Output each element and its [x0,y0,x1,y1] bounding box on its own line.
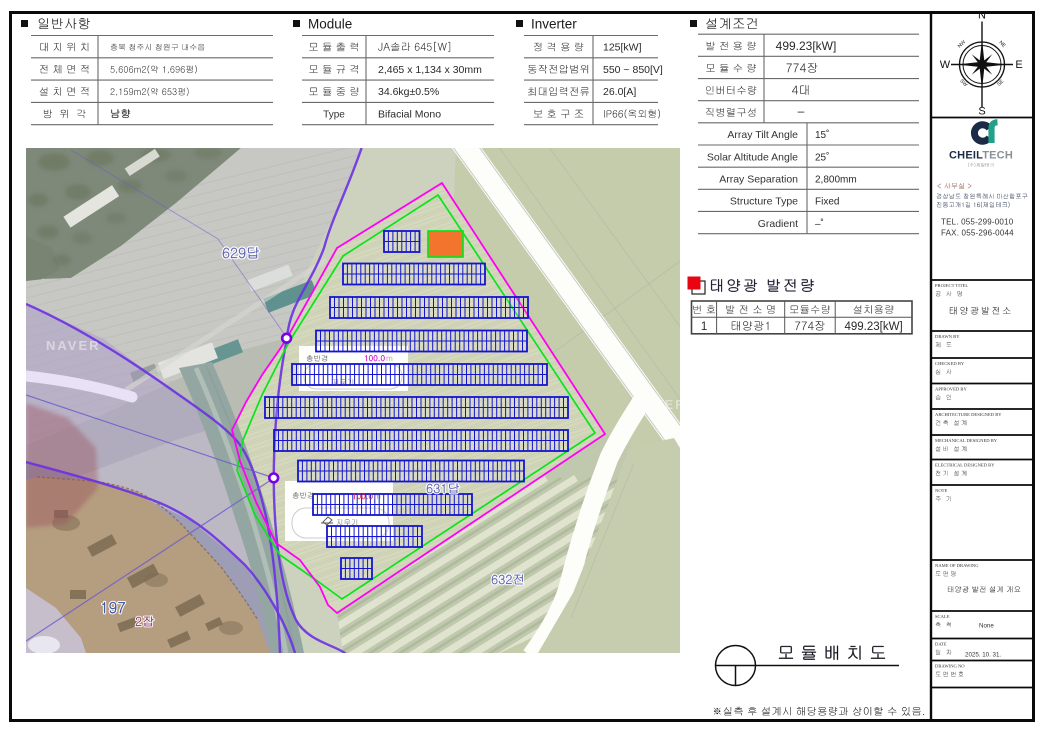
svg-text:34.6kg±0.5%: 34.6kg±0.5% [378,86,439,98]
svg-text:DATE: DATE [935,642,947,647]
svg-text:None: None [979,623,994,630]
svg-text:Gradient: Gradient [758,218,798,230]
svg-text:499.23[kW]: 499.23[kW] [776,39,837,53]
svg-text:S: S [978,106,985,118]
svg-text:1: 1 [701,321,707,333]
svg-text:N: N [978,10,986,22]
svg-text:Array Tilt Angle: Array Tilt Angle [727,129,798,141]
svg-text:NAVER: NAVER [632,397,687,412]
svg-text:FAX. 055-296-0044: FAX. 055-296-0044 [941,229,1014,238]
svg-text:SCALE: SCALE [935,614,950,619]
svg-text:TEL. 055-299-0010: TEL. 055-299-0010 [941,218,1014,227]
svg-text:NAME OF DRAWING: NAME OF DRAWING [935,563,979,568]
svg-text:2,800mm: 2,800mm [815,174,857,185]
svg-text:Structure Type: Structure Type [730,196,798,208]
svg-text:125[kW]: 125[kW] [603,42,642,54]
svg-text:DRAWN BY: DRAWN BY [935,334,960,339]
svg-text:Module: Module [308,17,352,32]
svg-text:15˚: 15˚ [815,129,829,141]
svg-text:Type: Type [323,109,345,120]
svg-text:–˚: –˚ [815,218,824,230]
svg-text:Solar Altitude Angle: Solar Altitude Angle [707,151,798,163]
svg-text:Inverter: Inverter [531,17,577,32]
svg-text:MECHANICAL DESIGNED BY: MECHANICAL DESIGNED BY [935,438,998,443]
svg-text:NAVER: NAVER [46,338,101,353]
svg-text:DRAWING NO: DRAWING NO [935,664,965,669]
svg-text:APPROVED BY: APPROVED BY [935,387,967,392]
svg-text:Fixed: Fixed [815,197,839,208]
svg-text:NE: NE [998,40,1008,50]
svg-text:SE: SE [996,78,1005,87]
svg-text:2,465 x 1,134 x 30mm: 2,465 x 1,134 x 30mm [378,64,482,76]
svg-text:25˚: 25˚ [815,151,829,163]
svg-text:2025. 10. 31.: 2025. 10. 31. [965,652,1001,659]
svg-text:–: – [798,104,805,118]
svg-text:E: E [1015,59,1022,71]
svg-text:26.0[A]: 26.0[A] [603,86,636,98]
svg-text:550 ~ 850[V]: 550 ~ 850[V] [603,64,663,76]
svg-text:CHEILTECH: CHEILTECH [949,150,1013,162]
svg-text:W: W [940,59,951,71]
svg-text:ARCHITECTURE DESIGNED BY: ARCHITECTURE DESIGNED BY [935,412,1002,417]
svg-text:Array Separation: Array Separation [719,173,798,185]
svg-text:SW: SW [958,78,968,88]
svg-text:Bifacial Mono: Bifacial Mono [378,108,441,120]
svg-text:CHECKED BY: CHECKED BY [935,361,965,366]
svg-text:NOTE: NOTE [935,488,947,493]
svg-text:NW: NW [957,39,967,49]
svg-text:PROJECT TITEL: PROJECT TITEL [935,283,968,288]
svg-text:499.23[kW]: 499.23[kW] [845,321,903,333]
svg-text:ELECTRICAL DESIGNED BY: ELECTRICAL DESIGNED BY [935,463,995,468]
